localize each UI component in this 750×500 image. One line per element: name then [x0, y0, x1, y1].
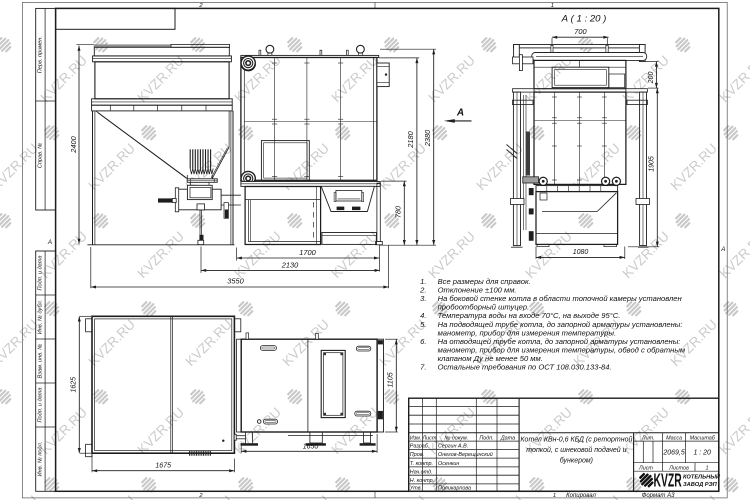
- svg-text:3550: 3550: [227, 277, 244, 286]
- svg-text:Подп. и дата: Подп. и дата: [37, 255, 43, 290]
- svg-text:3.: 3.: [420, 294, 426, 303]
- svg-text:5.: 5.: [420, 320, 426, 329]
- svg-text:№ докум.: № докум.: [444, 435, 468, 441]
- svg-text:А: А: [47, 239, 52, 246]
- svg-text:Масштаб: Масштаб: [690, 435, 716, 441]
- svg-text:Нач.отд.: Нач.отд.: [410, 469, 433, 475]
- svg-text:2400: 2400: [69, 135, 78, 153]
- svg-text:бункером): бункером): [560, 457, 593, 465]
- svg-text:Подп. и дата: Подп. и дата: [37, 387, 43, 422]
- svg-text:Подп.: Подп.: [479, 435, 493, 441]
- svg-text:200: 200: [648, 72, 655, 85]
- svg-text:топкой, с шнековой подачей и: топкой, с шнековой подачей и: [526, 446, 626, 454]
- svg-text:1: 1: [553, 493, 556, 499]
- svg-text:Лист: Лист: [638, 466, 653, 472]
- svg-text:ЗАВОД РЭП: ЗАВОД РЭП: [683, 482, 718, 488]
- svg-text:А: А: [456, 108, 464, 119]
- svg-text:2180: 2180: [406, 130, 415, 148]
- svg-text:1650: 1650: [303, 443, 319, 450]
- svg-text:2130: 2130: [281, 260, 299, 269]
- svg-text:2380: 2380: [423, 129, 432, 147]
- svg-text:1 : 20: 1 : 20: [693, 450, 711, 457]
- svg-text:Дата: Дата: [500, 435, 515, 441]
- svg-text:1080: 1080: [573, 249, 589, 256]
- svg-text:1700: 1700: [299, 248, 316, 257]
- svg-text:Перв. примен.: Перв. примен.: [37, 36, 43, 73]
- svg-text:Осенкин: Осенкин: [438, 461, 459, 467]
- svg-text:Котел КВн-0,6 КБД (с ретортной: Котел КВн-0,6 КБД (с ретортной: [520, 436, 632, 444]
- svg-text:1: 1: [706, 466, 709, 472]
- svg-text:Справ. №: Справ. №: [37, 143, 43, 168]
- svg-text:Инв. № подл.: Инв. № подл.: [37, 442, 43, 477]
- svg-text:А ( 1 : 20 ): А ( 1 : 20 ): [561, 14, 607, 25]
- svg-text:Сергин А.В.: Сергин А.В.: [438, 444, 468, 450]
- svg-text:7.: 7.: [420, 363, 426, 372]
- svg-text:2069,5: 2069,5: [662, 450, 685, 457]
- svg-text:Изм.: Изм.: [410, 435, 422, 441]
- svg-text:Масса: Масса: [666, 435, 682, 441]
- svg-text:Лист: Лист: [421, 435, 436, 441]
- svg-text:КОТЕЛЬНЫЙ: КОТЕЛЬНЫЙ: [683, 472, 721, 480]
- svg-text:Лит.: Лит.: [641, 435, 655, 441]
- svg-text:Поликарпова: Поликарпова: [438, 486, 471, 492]
- svg-text:Остальные требования по ОСТ 10: Остальные требования по ОСТ 108.030.133-…: [438, 363, 612, 372]
- svg-text:1105: 1105: [388, 372, 395, 387]
- svg-text:6.: 6.: [420, 337, 426, 346]
- svg-text:Разраб.: Разраб.: [410, 444, 430, 450]
- svg-text:Т. контр.: Т. контр.: [410, 461, 433, 467]
- svg-text:1675: 1675: [155, 463, 171, 470]
- svg-text:1905: 1905: [649, 156, 656, 172]
- svg-text:700: 700: [574, 27, 587, 36]
- svg-text:Инв. № дубл.: Инв. № дубл.: [37, 300, 43, 334]
- svg-text:А: А: [720, 246, 725, 253]
- svg-text:Пров.: Пров.: [410, 452, 424, 458]
- svg-text:Копировал: Копировал: [566, 493, 596, 499]
- svg-text:KVZR: KVZR: [654, 470, 682, 491]
- svg-text:Утв.: Утв.: [409, 486, 422, 492]
- svg-text:780: 780: [394, 205, 403, 218]
- svg-text:Н. контр.: Н. контр.: [410, 478, 434, 484]
- svg-text:1625: 1625: [71, 377, 78, 393]
- svg-text:Формат А3: Формат А3: [642, 493, 675, 499]
- svg-text:Взам. инв. №: Взам. инв. №: [37, 344, 43, 379]
- svg-text:Онегов-Верещинский: Онегов-Верещинский: [438, 451, 493, 458]
